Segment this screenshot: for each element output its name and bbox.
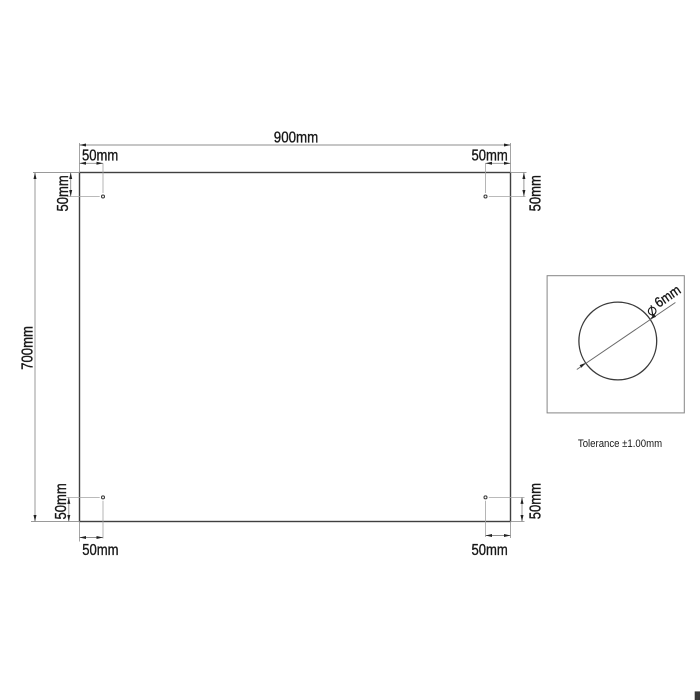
svg-text:50mm: 50mm: [82, 542, 118, 559]
svg-text:50mm: 50mm: [82, 148, 118, 165]
svg-text:Tolerance ±1.00mm: Tolerance ±1.00mm: [578, 438, 662, 450]
svg-text:50mm: 50mm: [53, 483, 70, 519]
svg-text:50mm: 50mm: [472, 542, 508, 559]
svg-text:700mm: 700mm: [19, 326, 36, 370]
svg-text:50mm: 50mm: [528, 483, 545, 519]
svg-text:50mm: 50mm: [527, 175, 544, 211]
svg-text:50mm: 50mm: [472, 147, 508, 164]
svg-text:900mm: 900mm: [274, 130, 319, 147]
svg-text:6mm: 6mm: [651, 282, 683, 311]
svg-text:50mm: 50mm: [55, 175, 72, 211]
